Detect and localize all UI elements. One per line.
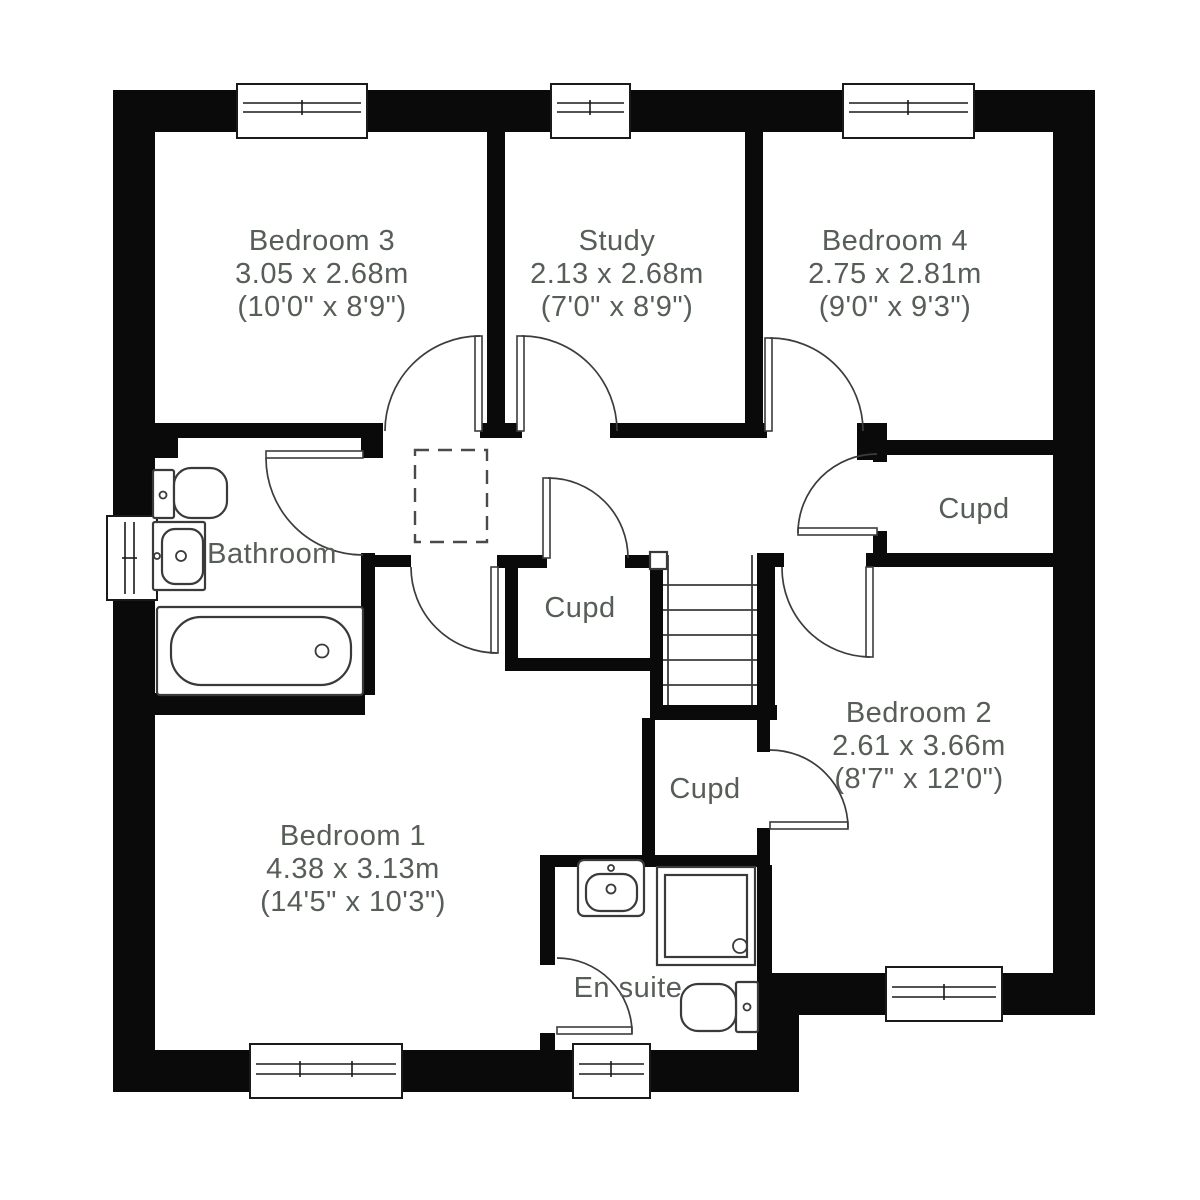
wall-segment: [757, 555, 775, 720]
wall-segment: [540, 1033, 555, 1052]
stair-newel: [650, 552, 667, 569]
wall-segment: [866, 553, 1055, 567]
wall-segment: [650, 555, 663, 720]
room-name: Study: [579, 225, 656, 257]
staircase: [650, 552, 757, 705]
wall-segment: [113, 1050, 799, 1092]
wall-segment: [505, 555, 547, 568]
label-ensuite: En suite: [574, 972, 683, 1004]
label-cupboard-lower: Cupd: [669, 773, 740, 805]
wall-segment: [505, 658, 663, 671]
window-bedroom4: [843, 84, 974, 138]
washbasin-bathroom: [153, 522, 205, 590]
door-bedroom2: [782, 567, 873, 657]
wall-segment: [873, 440, 887, 462]
door-cupboard-middle: [543, 478, 628, 558]
room-size-imperial: (8'7" x 12'0"): [834, 763, 1003, 795]
window-bedroom3: [237, 84, 367, 138]
window-bedroom1: [250, 1044, 402, 1098]
wall-segment: [505, 555, 518, 671]
wall-segment: [610, 423, 745, 438]
label-bedroom4: Bedroom 4 2.75 x 2.81m (9'0" x 9'3"): [808, 225, 982, 323]
room-size-imperial: (14'5" x 10'3"): [260, 886, 446, 918]
window-ensuite: [573, 1044, 650, 1098]
room-size-metric: 2.75 x 2.81m: [808, 258, 982, 290]
wall-segment: [757, 865, 772, 975]
room-size-metric: 4.38 x 3.13m: [266, 853, 440, 885]
wall-segment: [361, 555, 411, 567]
wall-segment: [650, 705, 777, 720]
label-study: Study 2.13 x 2.68m (7'0" x 8'9"): [530, 225, 704, 323]
loft-hatch: [415, 450, 487, 542]
door-bedroom1: [411, 567, 498, 653]
label-bedroom3: Bedroom 3 3.05 x 2.68m (10'0" x 8'9"): [235, 225, 409, 323]
door-bedroom4: [765, 338, 863, 431]
washbasin-ensuite: [578, 860, 644, 916]
window-bedroom2: [886, 967, 1002, 1021]
room-name: Bedroom 3: [249, 225, 395, 257]
door-bedroom3: [385, 336, 482, 431]
label-cupboard-middle: Cupd: [544, 592, 615, 624]
room-name: Bedroom 2: [846, 697, 992, 729]
room-size-imperial: (9'0" x 9'3"): [819, 291, 972, 323]
room-size-imperial: (7'0" x 8'9"): [541, 291, 694, 323]
label-bathroom: Bathroom: [207, 538, 337, 570]
floor-plan-page: Bedroom 3 3.05 x 2.68m (10'0" x 8'9") St…: [0, 0, 1200, 1200]
wall-segment: [153, 438, 178, 458]
label-bedroom1: Bedroom 1 4.38 x 3.13m (14'5" x 10'3"): [260, 820, 446, 918]
room-name: Bedroom 4: [822, 225, 968, 257]
wall-segment: [540, 855, 555, 965]
room-size-metric: 2.13 x 2.68m: [530, 258, 704, 290]
toilet-bathroom: [153, 468, 227, 518]
label-cupboard-right: Cupd: [938, 493, 1009, 525]
door-cupboard-right: [798, 454, 877, 535]
floor-plan-drawing: Bedroom 3 3.05 x 2.68m (10'0" x 8'9") St…: [0, 0, 1200, 1200]
room-name: Bedroom 1: [280, 820, 426, 852]
window-study: [551, 84, 630, 138]
door-study: [517, 336, 617, 431]
wall-segment: [361, 438, 383, 458]
wall-segment: [480, 423, 522, 438]
wall-segment: [757, 1013, 799, 1092]
wall-segment: [757, 718, 770, 752]
wall-segment: [745, 130, 763, 425]
wall-segment: [642, 718, 655, 867]
toilet-ensuite: [681, 982, 758, 1032]
wall-segment: [540, 855, 770, 867]
room-size-imperial: (10'0" x 8'9"): [237, 291, 406, 323]
window-bathroom: [107, 516, 157, 600]
shower-enclosure: [657, 867, 755, 965]
room-size-metric: 3.05 x 2.68m: [235, 258, 409, 290]
wall-segment: [887, 440, 1057, 455]
bathtub: [157, 607, 363, 695]
label-bedroom2: Bedroom 2 2.61 x 3.66m (8'7" x 12'0"): [832, 697, 1006, 795]
wall-segment: [1053, 90, 1095, 1015]
wall-segment: [140, 423, 383, 438]
room-size-metric: 2.61 x 3.66m: [832, 730, 1006, 762]
wall-segment: [140, 693, 365, 715]
wall-segment: [487, 130, 505, 425]
